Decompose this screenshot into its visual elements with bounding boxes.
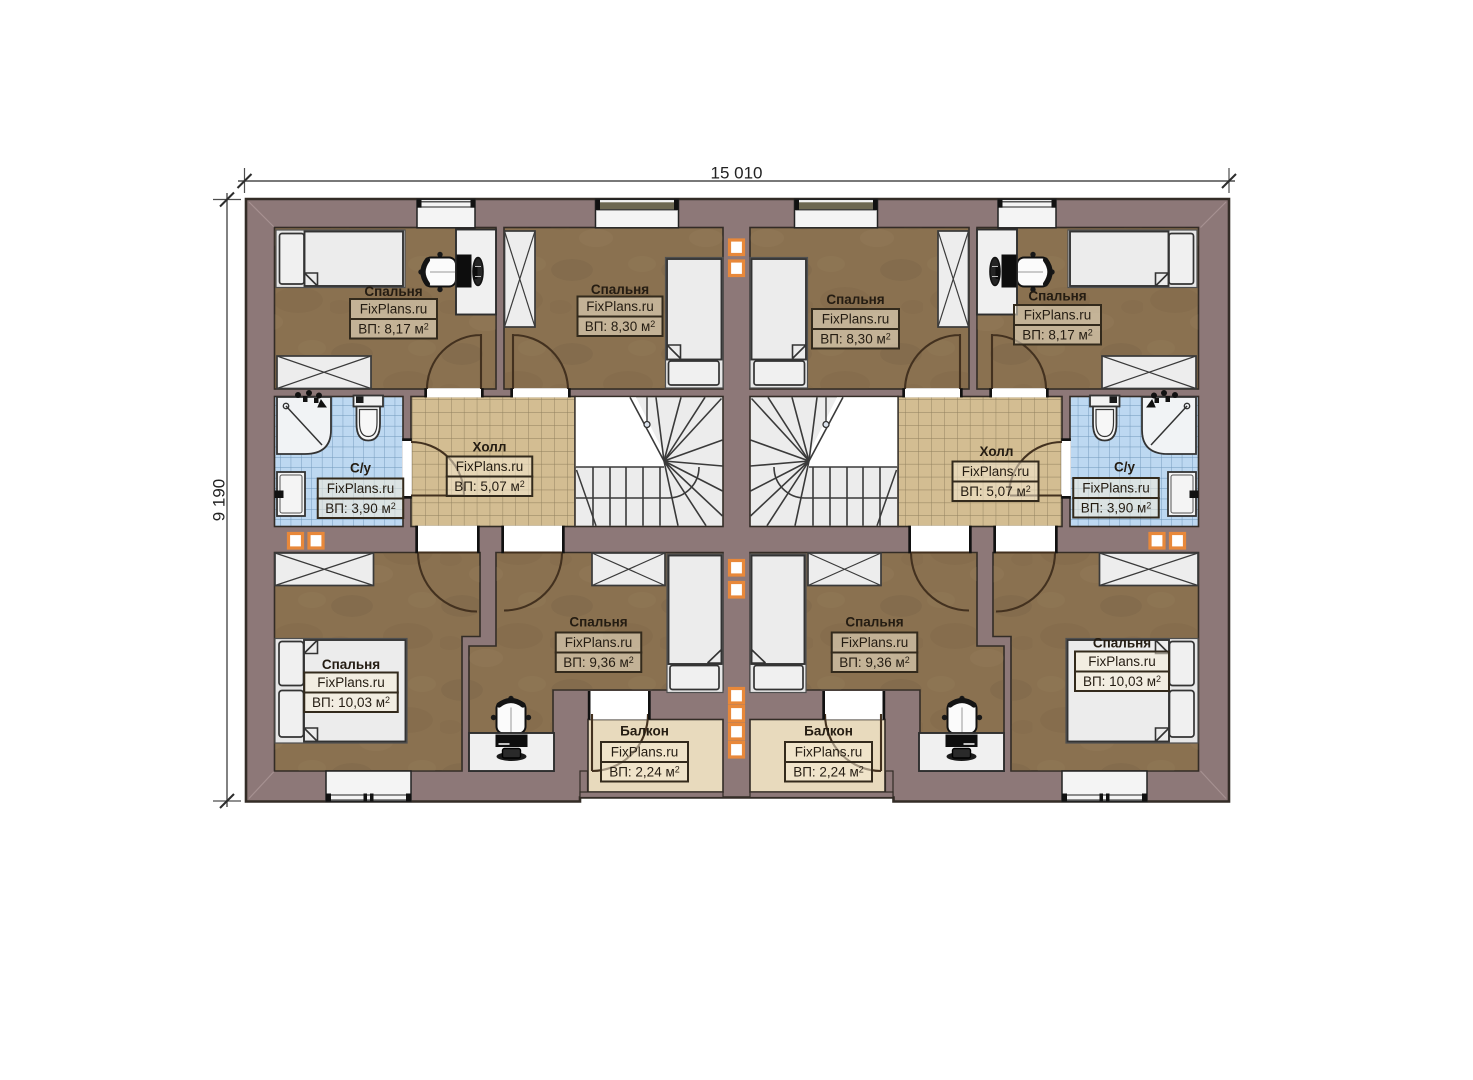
svg-text:Балкон: Балкон bbox=[804, 724, 853, 739]
svg-text:ВП: 8,30 м2: ВП: 8,30 м2 bbox=[585, 319, 656, 334]
svg-text:ВП: 8,30 м2: ВП: 8,30 м2 bbox=[820, 332, 891, 347]
svg-text:FixPlans.ru: FixPlans.ru bbox=[327, 481, 395, 496]
svg-text:Холл: Холл bbox=[980, 444, 1014, 459]
svg-text:Спальня: Спальня bbox=[364, 284, 422, 299]
svg-text:FixPlans.ru: FixPlans.ru bbox=[586, 299, 654, 314]
svg-text:FixPlans.ru: FixPlans.ru bbox=[1088, 654, 1156, 669]
svg-text:ВП: 3,90 м2: ВП: 3,90 м2 bbox=[325, 501, 396, 516]
svg-text:ВП: 10,03 м2: ВП: 10,03 м2 bbox=[312, 695, 390, 710]
svg-text:ВП: 2,24 м2: ВП: 2,24 м2 bbox=[793, 765, 864, 780]
svg-text:FixPlans.ru: FixPlans.ru bbox=[1024, 308, 1092, 323]
svg-text:Спальня: Спальня bbox=[826, 292, 884, 307]
svg-text:Спальня: Спальня bbox=[1093, 636, 1151, 651]
svg-text:FixPlans.ru: FixPlans.ru bbox=[962, 464, 1030, 479]
svg-text:Спальня: Спальня bbox=[1028, 289, 1086, 304]
svg-text:ВП: 2,24 м2: ВП: 2,24 м2 bbox=[609, 765, 680, 780]
svg-text:FixPlans.ru: FixPlans.ru bbox=[795, 745, 863, 760]
svg-text:9 190: 9 190 bbox=[210, 479, 229, 522]
svg-text:Спальня: Спальня bbox=[569, 615, 627, 630]
svg-text:ВП: 3,90 м2: ВП: 3,90 м2 bbox=[1081, 501, 1152, 516]
svg-text:FixPlans.ru: FixPlans.ru bbox=[1082, 481, 1150, 496]
svg-text:FixPlans.ru: FixPlans.ru bbox=[456, 459, 524, 474]
svg-text:Балкон: Балкон bbox=[620, 724, 669, 739]
svg-text:FixPlans.ru: FixPlans.ru bbox=[841, 635, 909, 650]
svg-text:15 010: 15 010 bbox=[711, 164, 763, 183]
svg-text:С/у: С/у bbox=[1114, 460, 1136, 475]
svg-text:ВП: 9,36 м2: ВП: 9,36 м2 bbox=[839, 655, 910, 670]
svg-text:ВП: 5,07 м2: ВП: 5,07 м2 bbox=[960, 484, 1031, 499]
svg-text:Холл: Холл bbox=[473, 440, 507, 455]
svg-text:ВП: 9,36 м2: ВП: 9,36 м2 bbox=[563, 655, 634, 670]
svg-text:FixPlans.ru: FixPlans.ru bbox=[360, 302, 428, 317]
svg-text:ВП: 10,03 м2: ВП: 10,03 м2 bbox=[1083, 674, 1161, 689]
svg-text:Спальня: Спальня bbox=[845, 615, 903, 630]
svg-text:ВП: 5,07 м2: ВП: 5,07 м2 bbox=[454, 479, 525, 494]
svg-text:Спальня: Спальня bbox=[322, 657, 380, 672]
svg-text:FixPlans.ru: FixPlans.ru bbox=[822, 312, 890, 327]
svg-text:С/у: С/у bbox=[350, 461, 372, 476]
svg-text:FixPlans.ru: FixPlans.ru bbox=[317, 675, 385, 690]
svg-text:ВП: 8,17 м2: ВП: 8,17 м2 bbox=[1022, 328, 1093, 343]
svg-text:Спальня: Спальня bbox=[591, 282, 649, 297]
svg-text:FixPlans.ru: FixPlans.ru bbox=[611, 745, 679, 760]
svg-text:ВП: 8,17 м2: ВП: 8,17 м2 bbox=[358, 322, 429, 337]
svg-text:FixPlans.ru: FixPlans.ru bbox=[565, 635, 633, 650]
